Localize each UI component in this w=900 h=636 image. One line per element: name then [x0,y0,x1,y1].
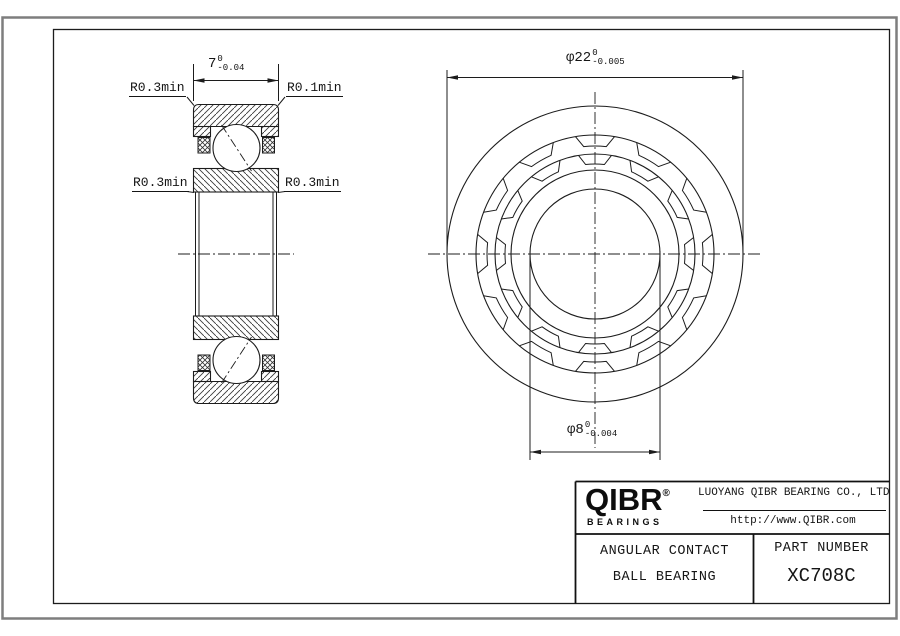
cage-section [263,355,275,371]
bore-dia-dimension-text: φ8 0 -0.004 [567,421,617,439]
width-dimension-value: 7 [208,57,216,71]
width-tolerance-lower: -0.04 [217,64,244,73]
part-number-label: PART NUMBER [754,542,889,556]
fillet-label-mid-right: R0.3min [284,176,341,192]
cage-pocket [519,143,553,167]
cage-section [198,138,210,154]
company-name: LUOYANG QIBR BEARING CO., LTD [698,488,888,499]
product-type-line1: ANGULAR CONTACT [576,545,753,559]
fillet-label-top-right: R0.1min [286,81,343,97]
company-website: http://www.QIBR.com [698,516,888,527]
width-dimension-text: 7 0 -0.04 [208,55,244,73]
section-view [178,105,294,404]
fillet-label-top-left: R0.3min [129,81,186,97]
part-number-value: XC708C [754,567,889,586]
page-border [3,18,897,619]
outer-dia-value: φ22 [566,51,591,65]
bore-dia-value: φ8 [567,423,584,437]
outer-dia-dimension-text: φ22 0 -0.005 [566,49,625,67]
cage-section [198,355,210,371]
registered-trademark-icon: ® [663,488,670,499]
fillet-label-mid-left: R0.3min [132,176,189,192]
outer-dia-tolerance-lower: -0.005 [592,58,624,67]
cage-pocket [519,341,553,365]
cage-section [263,138,275,154]
company-logo: QIBR® BEARINGS [585,486,670,527]
front-view [428,92,762,448]
cage-pocket [637,341,671,365]
ball-bottom [213,337,260,384]
drawing-page: R0.3min R0.1min R0.3min R0.3min 7 0 -0.0… [0,0,900,636]
logo-text: QIBR [585,482,663,517]
product-type-line2: BALL BEARING [576,571,753,585]
cage-pocket [682,178,706,212]
cage-pocket [484,178,508,212]
bore-dia-tolerance-lower: -0.004 [585,430,617,439]
ball-top [213,125,260,172]
cage-pocket [682,296,706,330]
cage-pocket [484,296,508,330]
logo-subtext: BEARINGS [587,517,670,527]
cage-pocket [637,143,671,167]
